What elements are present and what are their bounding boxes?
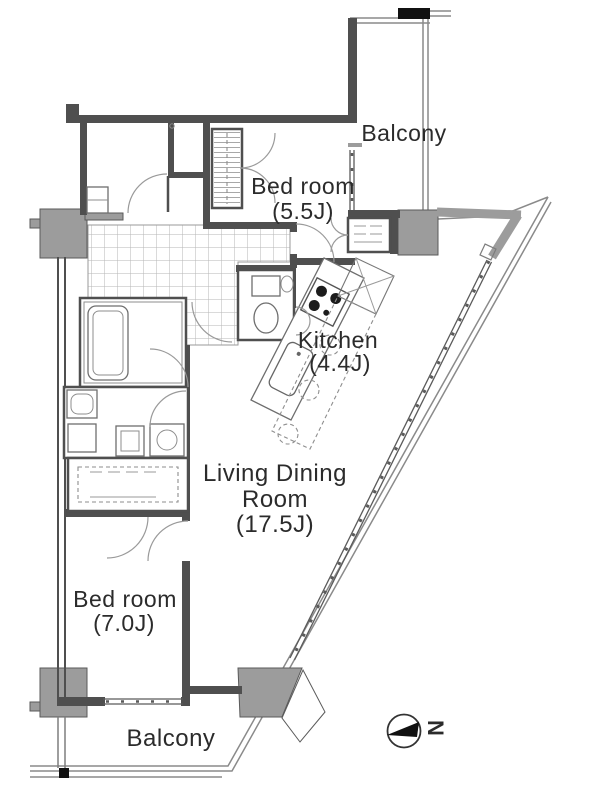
heater-closet-fold-arc-bottom	[331, 235, 348, 252]
wall-shaft-divider	[168, 172, 210, 178]
bedroom2-balcony-window	[103, 699, 183, 704]
entrance-door-arc	[128, 174, 167, 213]
toilet-tank	[252, 276, 280, 296]
pillar-top-left	[40, 209, 87, 258]
wall-stub-left-top	[30, 219, 40, 228]
pillar-bottom-left	[40, 668, 87, 717]
bottom-wall-section-marker	[59, 768, 69, 778]
bathtub	[88, 306, 128, 380]
toilet-bowl	[254, 303, 278, 333]
wall-left-outer	[58, 257, 65, 697]
bedroom2-name-label: Bed room	[73, 586, 177, 612]
compass: N	[387, 715, 448, 748]
bedroom2-size-label: (7.0J)	[93, 610, 155, 636]
wall-ldk-left-lower	[182, 561, 190, 697]
balcony-top-label: Balcony	[361, 120, 446, 146]
living-label-line2: Room	[242, 486, 308, 513]
wall-entry-inner	[168, 123, 174, 177]
bedroom2-closet	[68, 458, 188, 511]
wall-top	[66, 115, 354, 123]
wall-entry-left	[80, 123, 87, 215]
washing-machine	[150, 424, 184, 456]
washroom-cabinet	[68, 424, 96, 452]
top-balcony-partition	[348, 143, 362, 147]
pillar-top-right	[398, 210, 438, 255]
wall-bedroom2-bottom-left	[57, 697, 105, 706]
water-heater-closet	[348, 218, 390, 252]
wall-balcony-left	[348, 18, 357, 123]
bedroom1-size-label: (5.5J)	[272, 198, 334, 224]
wall-left-below-pillar	[58, 716, 65, 768]
sanitary-rooms	[64, 270, 294, 458]
compass-letter: N	[423, 720, 448, 736]
top-wall-section-marker	[398, 8, 430, 19]
bedroom2-door-arc	[148, 521, 188, 561]
living-size-label: (17.5J)	[236, 511, 314, 538]
entrance-sill	[85, 213, 123, 220]
balcony-bottom-label: Balcony	[127, 725, 216, 752]
angled-wall-top	[437, 212, 521, 215]
kitchen-size-label: (4.4J)	[309, 350, 371, 376]
bedroom1-door-arc	[296, 224, 334, 262]
bedroom2-closet-door-arc	[107, 517, 148, 558]
angled-wall-diagonal	[492, 215, 518, 257]
stool-3	[278, 424, 298, 444]
wall-stub-left-bottom	[30, 702, 40, 711]
bedroom1-name-label: Bed room	[251, 173, 355, 199]
floor-plan-page: N Balcony Bed room (5.5J) Kitchen (4.4J)…	[0, 0, 600, 800]
wall-ldk-bottom	[185, 686, 242, 694]
bedroom1-closet-door-arc-top	[240, 133, 275, 168]
floor-plan-drawing: N Balcony Bed room (5.5J) Kitchen (4.4J)…	[0, 0, 600, 800]
living-label-line1: Living Dining	[203, 460, 347, 487]
